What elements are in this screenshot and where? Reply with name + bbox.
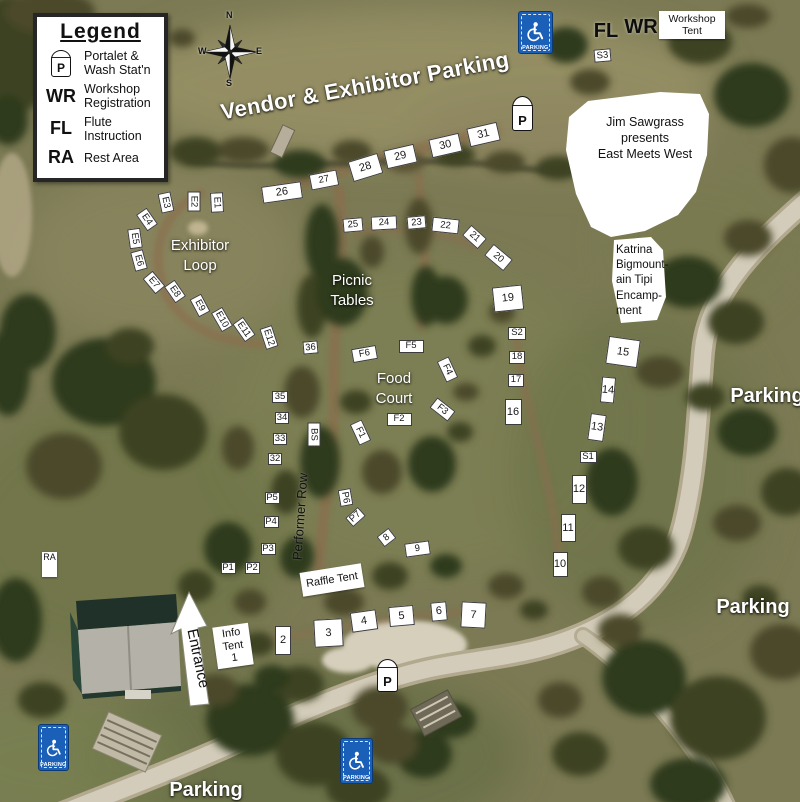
event-site-map: N E S W Legend P Portalet & Wash Stat'n … [0, 0, 800, 802]
legend-label: Workshop Registration [84, 82, 151, 111]
booth-P5: P5 [265, 492, 280, 504]
legend-item-flute: FL Flute Instruction [42, 115, 159, 144]
parking-label-southeast: Parking [713, 594, 793, 620]
booth-P3: P3 [261, 543, 276, 555]
booth-4: 4 [350, 609, 379, 632]
booth-14: 14 [600, 376, 616, 403]
handicap-parking-sign: PARKING [518, 11, 553, 54]
workshop-tent-box: Workshop Tent [659, 11, 725, 39]
booth-P6: P6 [337, 488, 353, 507]
jim-sawgrass-label: Jim Sawgrass presents East Meets West [582, 114, 708, 162]
booth-10: 10 [553, 552, 568, 577]
wheelchair-icon [524, 20, 546, 44]
booth-17: 17 [508, 374, 524, 387]
booth-35: 35 [272, 391, 288, 403]
katrina-encampment-label: Katrina Bigmount- ain Tipi Encamp- ment [616, 243, 668, 319]
booth-BS: BS [308, 422, 321, 446]
booth-33: 33 [273, 433, 287, 445]
legend-label: Rest Area [84, 151, 139, 165]
booth-11: 11 [561, 514, 576, 542]
booth-16: 16 [505, 399, 522, 425]
legend-label: Flute Instruction [84, 115, 142, 144]
handicap-sign-text: PARKING [343, 775, 369, 781]
portalet-icon: P [377, 659, 398, 692]
booth-18: 18 [509, 351, 525, 364]
legend-symbol-fl: FL [42, 118, 80, 139]
compass-south-label: S [226, 78, 232, 88]
booth-S3: S3 [593, 48, 611, 62]
booth-F5: F5 [399, 340, 424, 353]
booth-2: 2 [275, 626, 291, 655]
booth-36: 36 [302, 340, 318, 354]
flute-instruction-marker: FL [586, 20, 626, 43]
booth-22: 22 [431, 216, 459, 234]
booth-3: 3 [313, 618, 343, 647]
compass-north-label: N [226, 10, 233, 20]
portalet-icon: P [51, 50, 71, 77]
legend-label: Portalet & Wash Stat'n [84, 49, 151, 78]
booth-34: 34 [275, 412, 289, 424]
booth-32: 32 [268, 453, 282, 465]
wheelchair-icon [346, 748, 367, 774]
food-court-label: Food Court [354, 369, 434, 408]
portalet-letter: P [57, 62, 65, 76]
legend-symbol-wr: WR [42, 86, 80, 107]
picnic-tables-label: Picnic Tables [312, 271, 392, 310]
booth-23: 23 [406, 215, 426, 230]
booth-5: 5 [388, 605, 415, 627]
legend: Legend P Portalet & Wash Stat'n WR Works… [33, 13, 168, 182]
booth-P1: P1 [221, 562, 236, 574]
handicap-parking-sign: PARKING [340, 738, 373, 784]
booth-7: 7 [460, 601, 486, 628]
legend-symbol-ra: RA [42, 147, 80, 168]
info-tent-box: Info Tent 1 [212, 623, 253, 670]
booth-S1: S1 [580, 451, 597, 463]
booth-19: 19 [492, 284, 524, 312]
booth-25: 25 [342, 217, 363, 233]
booth-P4: P4 [264, 516, 279, 528]
portalet-letter: P [518, 114, 527, 130]
wheelchair-icon [44, 735, 63, 761]
legend-title: Legend [42, 20, 159, 44]
legend-item-workshop: WR Workshop Registration [42, 82, 159, 111]
booth-S2: S2 [508, 327, 526, 340]
booth-P2: P2 [245, 562, 260, 574]
legend-item-rest: RA Rest Area [42, 147, 159, 168]
compass-west-label: W [198, 46, 207, 56]
parking-label-south: Parking [166, 777, 246, 802]
booth-F2: F2 [387, 413, 412, 426]
compass-east-label: E [256, 46, 262, 56]
handicap-parking-sign: PARKING [38, 724, 69, 771]
building [70, 594, 181, 699]
booth-24: 24 [371, 215, 398, 230]
portalet-letter: P [383, 675, 392, 691]
parking-label-east: Parking [727, 383, 800, 409]
workshop-registration-marker: WR [621, 16, 661, 39]
booth-E5: E5 [127, 227, 143, 249]
rest-area-box: RA [42, 552, 57, 577]
legend-item-portalet: P Portalet & Wash Stat'n [42, 49, 159, 78]
booth-6: 6 [430, 601, 448, 621]
handicap-sign-text: PARKING [40, 762, 66, 768]
compass-rose: N E S W [196, 12, 264, 88]
portalet-icon: P [512, 96, 533, 131]
exhibitor-loop-label: Exhibitor Loop [155, 236, 245, 275]
booth-E1: E1 [210, 192, 224, 213]
handicap-sign-text: PARKING [522, 45, 548, 51]
booth-15: 15 [605, 336, 641, 368]
booth-E2: E2 [188, 191, 201, 211]
booth-12: 12 [572, 475, 587, 504]
